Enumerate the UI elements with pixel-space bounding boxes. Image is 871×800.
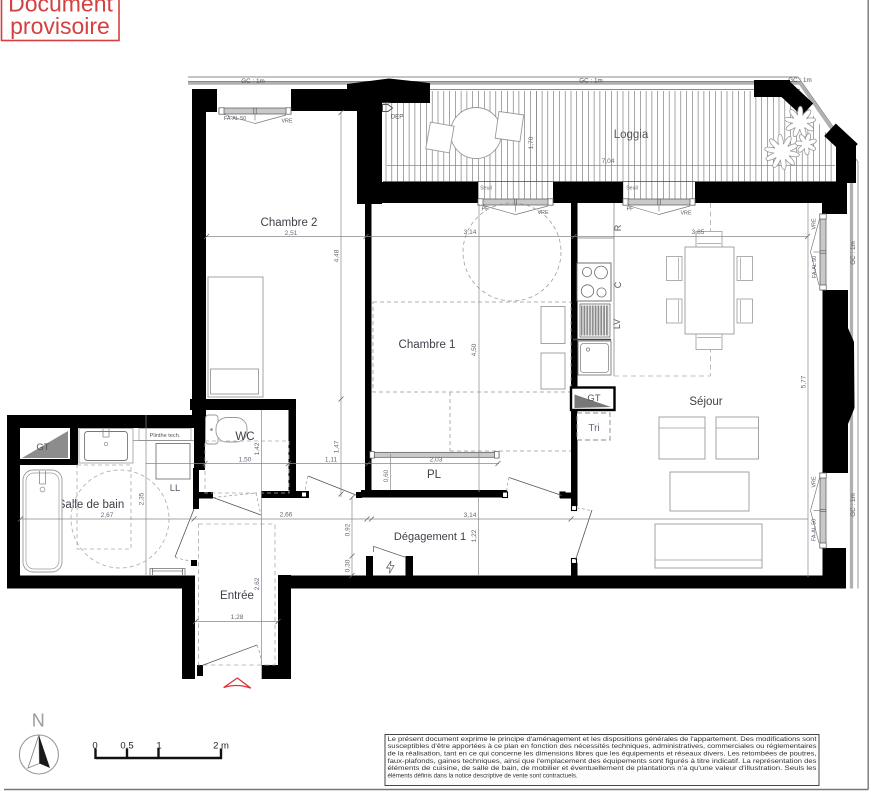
svg-text:1: 1 <box>156 741 161 752</box>
svg-text:N: N <box>32 711 45 731</box>
svg-text:C: C <box>613 281 623 288</box>
svg-text:0,60: 0,60 <box>383 469 390 482</box>
svg-text:4,48: 4,48 <box>334 249 341 262</box>
svg-text:éléments de cuisine, de salle: éléments de cuisine, de salle de bain, d… <box>388 765 817 772</box>
svg-text:2,51: 2,51 <box>285 230 298 237</box>
svg-text:2,03: 2,03 <box>430 457 443 464</box>
svg-text:3,85: 3,85 <box>692 229 705 236</box>
svg-text:VRE: VRE <box>812 218 818 229</box>
svg-text:5,77: 5,77 <box>801 375 808 388</box>
svg-text:faux-plafonds, gaines techniqu: faux-plafonds, gaines techniques, ainsi … <box>388 758 817 765</box>
svg-text:1,22: 1,22 <box>471 529 478 542</box>
svg-text:Entrée: Entrée <box>220 590 254 602</box>
svg-text:2,66: 2,66 <box>280 512 293 519</box>
svg-text:Chambre 2: Chambre 2 <box>261 217 318 229</box>
svg-text:GC : 1m: GC : 1m <box>850 493 857 516</box>
svg-text:provisoire: provisoire <box>10 13 110 39</box>
svg-text:1,28: 1,28 <box>231 614 244 621</box>
svg-text:Tri: Tri <box>588 423 599 434</box>
svg-text:1,47: 1,47 <box>334 440 341 453</box>
svg-text:R: R <box>613 224 623 231</box>
svg-text:VRE: VRE <box>812 476 818 487</box>
svg-text:Séjour: Séjour <box>689 396 722 408</box>
svg-text:Le présent document exprime le: Le présent document exprime le principe … <box>388 736 817 743</box>
svg-text:WC: WC <box>235 431 254 443</box>
svg-text:LV: LV <box>612 319 622 329</box>
svg-text:0,5: 0,5 <box>120 741 133 752</box>
svg-text:susceptibles d'être apportées: susceptibles d'être apportées à ce plan … <box>388 743 817 750</box>
svg-text:1,11: 1,11 <box>325 457 338 464</box>
svg-text:3,14: 3,14 <box>464 512 477 519</box>
svg-text:4,50: 4,50 <box>471 343 478 356</box>
svg-text:GT: GT <box>36 442 49 453</box>
svg-text:FA-AL 50: FA-AL 50 <box>224 116 246 122</box>
svg-text:Loggia: Loggia <box>614 129 649 141</box>
svg-text:0,30: 0,30 <box>345 559 352 572</box>
svg-text:Plinthe tech.: Plinthe tech. <box>150 433 181 439</box>
svg-text:0,92: 0,92 <box>345 523 352 536</box>
svg-text:7,04: 7,04 <box>602 158 615 165</box>
svg-text:GT: GT <box>587 393 600 404</box>
svg-text:0: 0 <box>92 741 97 752</box>
svg-text:1,70: 1,70 <box>528 136 535 149</box>
svg-text:Seuil: Seuil <box>626 186 638 192</box>
svg-text:GC : 1m: GC : 1m <box>579 78 602 85</box>
svg-text:DEP: DEP <box>391 114 404 121</box>
svg-text:3,14: 3,14 <box>464 229 477 236</box>
svg-text:Seuil: Seuil <box>480 186 492 192</box>
svg-text:VRE: VRE <box>680 211 691 217</box>
svg-text:2 m: 2 m <box>213 741 229 752</box>
svg-text:Dégagement 1: Dégagement 1 <box>394 531 466 543</box>
svg-text:FA-AL 50: FA-AL 50 <box>812 256 818 278</box>
svg-text:1,42: 1,42 <box>254 442 261 455</box>
svg-text:GC : 1m: GC : 1m <box>241 78 264 85</box>
svg-text:GC : 1m: GC : 1m <box>850 241 857 264</box>
svg-text:1,50: 1,50 <box>239 457 252 464</box>
svg-text:PL: PL <box>427 469 442 481</box>
svg-text:Chambre 1: Chambre 1 <box>399 339 456 351</box>
svg-text:FA-AL 50: FA-AL 50 <box>812 519 818 541</box>
svg-text:Salle de bain: Salle de bain <box>58 499 125 511</box>
svg-text:LL: LL <box>170 483 181 494</box>
svg-text:PF: PF <box>627 207 635 213</box>
svg-text:2,62: 2,62 <box>254 577 261 590</box>
svg-text:GC : 1m: GC : 1m <box>788 77 811 84</box>
svg-text:2,67: 2,67 <box>101 512 114 519</box>
svg-text:éléments définis dans la notic: éléments définis dans la notice descript… <box>388 773 578 780</box>
svg-text:2,35: 2,35 <box>139 492 146 505</box>
svg-text:VRE: VRE <box>281 119 292 125</box>
svg-text:de la réalisation, tant en ce: de la réalisation, tant en ce qui concer… <box>388 751 817 758</box>
